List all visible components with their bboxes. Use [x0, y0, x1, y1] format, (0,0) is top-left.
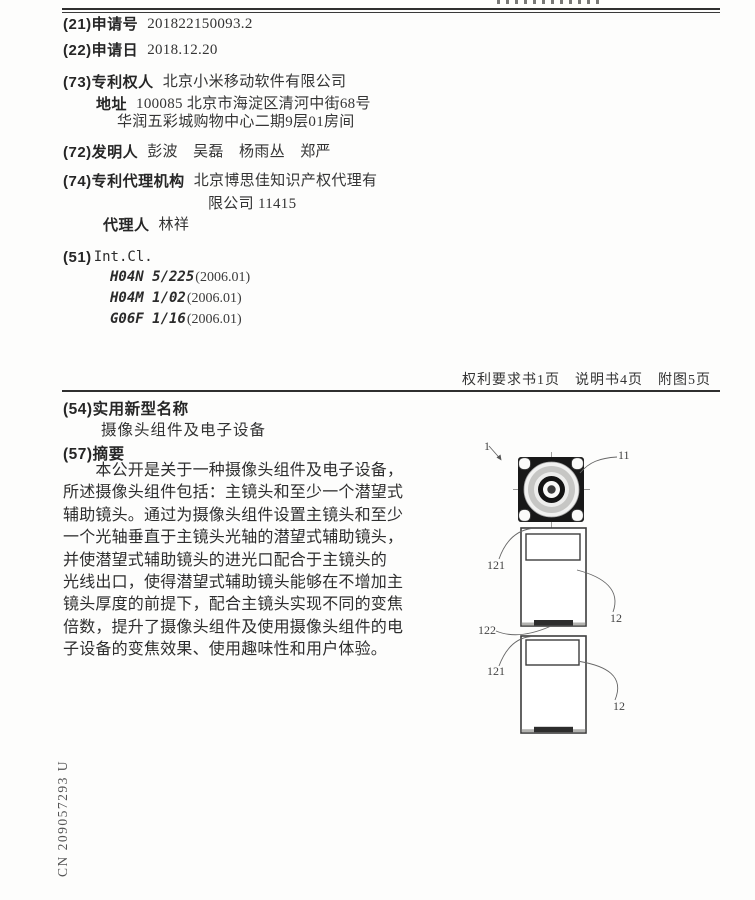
ref-label-1: 1 — [484, 439, 490, 453]
application-number-row: (21)申请号 201822150093.2 — [63, 17, 253, 32]
ref-label-12-top: 12 — [610, 611, 622, 625]
corner-notch — [571, 509, 583, 521]
title-section-label: (54)实用新型名称 — [63, 397, 189, 419]
leader-line-11 — [580, 457, 617, 473]
header-double-rule — [62, 8, 720, 13]
camera-module-drawing — [518, 457, 584, 522]
agency-value: 北京博思佳知识产权代理有 — [194, 174, 378, 189]
clipped-header-text — [497, 0, 605, 4]
agent-value: 林祥 — [159, 218, 190, 233]
intcl-version: (2006.01) — [187, 291, 242, 306]
ref-label-121-bottom: 121 — [487, 664, 505, 678]
patentee-label: (73)专利权人 — [63, 75, 154, 90]
corner-notch — [519, 458, 531, 470]
application-date-row: (22)申请日 2018.12.20 — [63, 43, 218, 58]
intcl-label-name: Int.Cl. — [94, 250, 153, 265]
intcl-code: H04N 5/225 — [110, 270, 194, 285]
application-number-value: 201822150093.2 — [147, 17, 252, 32]
inventors-row: (72)发明人 彭波 吴磊 杨雨丛 郑严 — [63, 145, 331, 160]
lower-aux-lens-drawing — [521, 636, 586, 733]
section-divider-rule — [62, 390, 720, 392]
patent-front-page: (21)申请号 201822150093.2 (22)申请日 2018.12.2… — [0, 0, 755, 900]
ref-label-11: 11 — [618, 448, 630, 462]
agency-label: (74)专利代理机构 — [63, 174, 185, 189]
light-exit-bar — [534, 620, 573, 625]
application-date-label: (22)申请日 — [63, 43, 138, 58]
agency-value-2: 限公司 11415 — [208, 197, 296, 212]
upper-aux-lens-drawing — [521, 528, 586, 626]
address-value: 100085 北京市海淀区清河中街68号 — [136, 97, 371, 112]
light-entry-window — [526, 534, 580, 560]
corner-notch — [571, 458, 583, 470]
patent-figure: 1 11 121 12 122 121 12 — [455, 433, 685, 743]
inventors-label: (72)发明人 — [63, 145, 138, 160]
agent-label: 代理人 — [103, 218, 150, 233]
intcl-entry-row: G06F 1/16 (2006.01) — [110, 312, 242, 327]
intcl-version: (2006.01) — [195, 270, 250, 285]
patentee-row: (73)专利权人 北京小米移动软件有限公司 — [63, 75, 346, 90]
abstract-text: 本公开是关于一种摄像头组件及电子设备， 所述摄像头组件包括：主镜头和至少一个潜望… — [63, 460, 419, 662]
intcl-label-number: (51) — [63, 250, 92, 265]
intcl-row: (51) Int.Cl. — [63, 250, 153, 265]
address-row-2: 华润五彩城购物中心二期9层01房间 — [117, 115, 355, 130]
intcl-version: (2006.01) — [187, 312, 242, 327]
leader-line-122 — [496, 627, 550, 635]
corner-notch — [519, 509, 531, 521]
agent-row: 代理人 林祥 — [103, 218, 189, 233]
agency-row: (74)专利代理机构 北京博思佳知识产权代理有 — [63, 174, 377, 189]
intcl-code: H04M 1/02 — [110, 291, 186, 306]
agency-row-2: 限公司 11415 — [208, 197, 296, 212]
ref-label-12-bottom: 12 — [613, 699, 625, 713]
publication-number-sidebar: CN 209057293 U — [55, 729, 72, 877]
patentee-value: 北京小米移动软件有限公司 — [163, 75, 347, 90]
lens-aperture — [547, 485, 555, 493]
bibliographic-data: (21)申请号 201822150093.2 (22)申请日 2018.12.2… — [63, 14, 503, 344]
address-row: 地址 100085 北京市海淀区清河中街68号 — [96, 97, 371, 112]
address-value-2: 华润五彩城购物中心二期9层01房间 — [117, 115, 355, 130]
intcl-code: G06F 1/16 — [110, 312, 186, 327]
application-number-label: (21)申请号 — [63, 17, 138, 32]
application-date-value: 2018.12.20 — [147, 43, 218, 58]
light-exit-bar — [534, 727, 573, 732]
ref-label-122: 122 — [478, 623, 496, 637]
inventors-value: 彭波 吴磊 杨雨丛 郑严 — [147, 145, 331, 160]
invention-title: 摄像头组件及电子设备 — [101, 418, 266, 440]
intcl-entry-row: H04N 5/225 (2006.01) — [110, 270, 250, 285]
address-label: 地址 — [96, 97, 127, 112]
ref-label-121-top: 121 — [487, 558, 505, 572]
pages-summary: 权利要求书1页 说明书4页 附图5页 — [462, 369, 711, 389]
light-entry-window — [526, 640, 579, 665]
intcl-entry-row: H04M 1/02 (2006.01) — [110, 291, 242, 306]
